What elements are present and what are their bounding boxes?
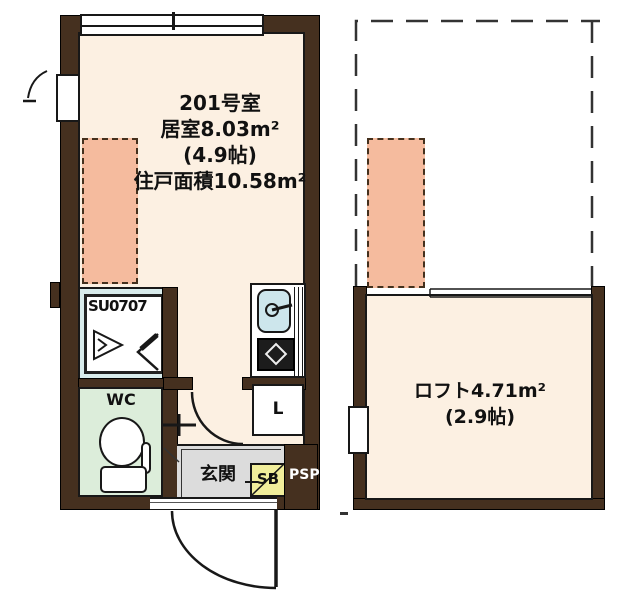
loft-text: ロフト4.71m² (2.9帖) xyxy=(385,378,575,430)
wall-stub-left xyxy=(163,377,193,390)
main-room-text: 201号室 居室8.03m² (4.9帖) 住戸面積10.58m² xyxy=(110,90,330,194)
window-left xyxy=(56,74,80,122)
futon-space-loft xyxy=(367,138,425,288)
pipe-space-label: PSP xyxy=(289,468,320,483)
washer-label: L xyxy=(252,400,304,419)
loft-tick-mark xyxy=(340,512,348,515)
living-area-label: 居室8.03m² xyxy=(110,116,330,142)
wall-pipe-bump xyxy=(50,282,60,308)
window-top xyxy=(80,14,264,36)
shoe-box-label: SB xyxy=(250,471,286,488)
floor-plan: 201号室 居室8.03m² (4.9帖) 住戸面積10.58m² SU0707… xyxy=(0,0,640,596)
loft-wall-right xyxy=(591,286,605,510)
toilet-bowl-icon xyxy=(99,417,145,467)
window-top-center-mark xyxy=(172,12,175,30)
unit-title: 201号室 xyxy=(110,90,330,116)
wall-wc-right xyxy=(162,287,178,498)
shower-unit-label: SU0707 xyxy=(88,298,160,315)
stove-burner-icon xyxy=(265,343,288,366)
entrance-door-opening xyxy=(150,497,277,510)
sink-icon xyxy=(257,289,291,333)
loft-area-label: ロフト4.71m² xyxy=(385,378,575,404)
toilet-tank-icon xyxy=(100,466,147,493)
window-swing-arc-icon xyxy=(28,71,47,98)
entrance-threshold-line xyxy=(150,502,277,503)
loft-tatami-label: (2.9帖) xyxy=(385,404,575,430)
kitchen-side-hatch xyxy=(294,287,303,376)
stove-icon xyxy=(257,338,295,371)
loft-window xyxy=(348,406,369,454)
entrance-door-arc-icon xyxy=(172,511,276,588)
living-tatami-label: (4.9帖) xyxy=(110,142,330,168)
wc-label: WC xyxy=(93,391,149,409)
entrance-label: 玄関 xyxy=(200,465,236,485)
total-area-label: 住戸面積10.58m² xyxy=(110,168,330,194)
